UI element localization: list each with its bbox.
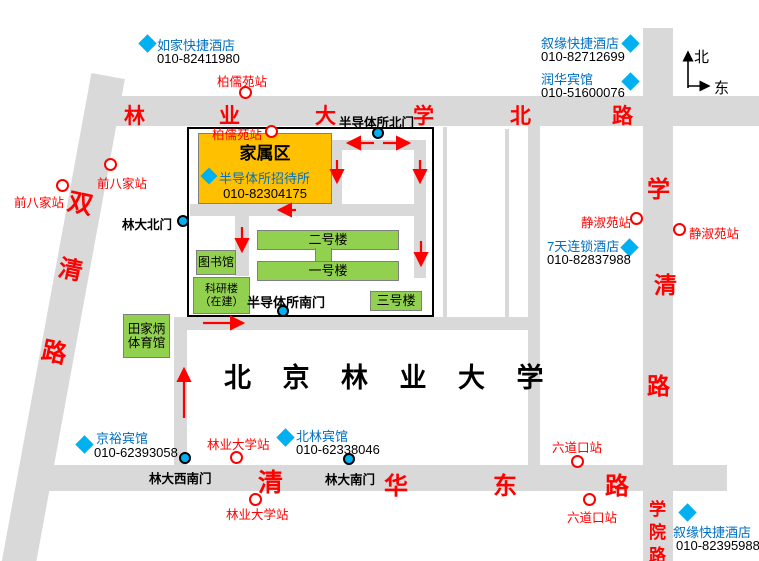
gate-linda-south-label: 林大南门 xyxy=(325,469,375,488)
hotel-runhua-phone: 010-51600076 xyxy=(541,85,625,100)
hotel-rujia-phone: 010-82411980 xyxy=(157,51,240,66)
station-jingshuyuan-1-label: 静淑苑站 xyxy=(581,212,631,231)
road-xueqing-char-1: 学 xyxy=(647,170,670,204)
station-bairuyuan-2-circle xyxy=(265,125,278,138)
hotel-xuyuan-south-diamond-icon xyxy=(678,503,696,521)
road-qinghua-char-4: 路 xyxy=(605,466,629,501)
block-divider-1 xyxy=(443,127,447,317)
building-gym-line2: 体育馆 xyxy=(128,336,166,350)
building-research-line1: 科研楼 xyxy=(205,283,238,296)
building-gym-line1: 田家炳 xyxy=(128,322,166,336)
compound-road-mid-h xyxy=(190,204,426,216)
guesthouse-phone: 010-82304175 xyxy=(199,186,331,201)
hotel-xuyuan-south-phone: 010-82395988 xyxy=(676,538,759,553)
building-no2-label: 二号楼 xyxy=(308,233,347,248)
gate-semi-north-dot xyxy=(372,127,384,139)
hotel-beilin-diamond-icon xyxy=(276,428,294,446)
gate-linda-north-label: 林大北门 xyxy=(122,214,172,233)
road-north-char-6: 路 xyxy=(612,100,633,130)
road-north-char-5: 北 xyxy=(510,100,531,130)
road-north-char-1: 林 xyxy=(124,100,145,130)
station-qianbajia-1-circle xyxy=(104,158,117,171)
road-qinghua-char-2: 华 xyxy=(384,466,408,501)
compound-road-mid-v xyxy=(235,216,249,276)
station-qianbajia-1-label: 前八家站 xyxy=(97,173,147,192)
building-no3-label: 三号楼 xyxy=(376,294,415,309)
building-research: 科研楼 （在建） xyxy=(193,277,250,314)
station-jingshuyuan-2-label: 静淑苑站 xyxy=(689,223,739,242)
gate-semi-south-dot xyxy=(277,305,289,317)
gate-linda-southwest-label: 林大西南门 xyxy=(149,468,212,487)
building-no2: 二号楼 xyxy=(257,230,399,250)
station-bairuyuan-2-label: 柏儒苑站 xyxy=(212,124,262,143)
road-qinghua-char-3: 东 xyxy=(493,466,517,501)
guesthouse-diamond-icon xyxy=(201,168,218,185)
station-bairuyuan-1-circle xyxy=(239,86,252,99)
road-minor-east xyxy=(528,124,540,466)
building-gym: 田家炳 体育馆 xyxy=(123,314,170,358)
station-jingshuyuan-1-circle xyxy=(630,212,643,225)
hotel-jingyu-diamond-icon xyxy=(75,435,93,453)
road-north-char-4: 学 xyxy=(413,100,434,130)
station-qianbajia-2-label: 前八家站 xyxy=(14,192,64,211)
station-liudaokou-2-circle xyxy=(583,493,596,506)
station-liudaokou-1-circle xyxy=(571,455,584,468)
station-jingshuyuan-2-circle xyxy=(673,223,686,236)
building-library-label: 图书馆 xyxy=(198,256,234,270)
building-no1-label: 一号楼 xyxy=(308,264,347,279)
block-divider-2 xyxy=(505,129,509,317)
road-campus-internal-h xyxy=(174,317,534,330)
station-liudaokou-1-label: 六道口站 xyxy=(552,437,602,456)
compass-north-label: 北 xyxy=(694,46,709,67)
road-xueqing-char-2: 清 xyxy=(654,266,677,300)
campus-title: 北 京 林 业 大 学 xyxy=(224,356,556,395)
road-north-char-3: 大 xyxy=(315,100,336,130)
campus-map: 家属区 半导体所招待所 010-82304175 二号楼 一号楼 图书馆 科研楼… xyxy=(0,0,759,561)
gate-linda-north-dot xyxy=(177,215,189,227)
road-xueyuan-char-1: 学 xyxy=(649,495,666,520)
road-xueyuan-char-2: 院 xyxy=(649,518,666,543)
hotel-jingyu-phone: 010-62393058 xyxy=(94,445,178,460)
road-xueyuan-char-3: 路 xyxy=(649,541,666,561)
building-no1: 一号楼 xyxy=(257,261,399,281)
hotel-qitian-phone: 010-82837988 xyxy=(547,252,631,267)
station-qianbajia-2-circle xyxy=(56,179,69,192)
building-research-line2: （在建） xyxy=(200,296,244,309)
building-no3: 三号楼 xyxy=(370,291,422,311)
guesthouse-name: 半导体所招待所 xyxy=(219,168,310,187)
family-area-box: 家属区 半导体所招待所 010-82304175 xyxy=(198,133,332,204)
building-library: 图书馆 xyxy=(196,250,236,275)
hotel-xuyuan-north-phone: 010-82712699 xyxy=(541,49,625,64)
compound-road-left xyxy=(332,140,342,206)
hotel-rujia-diamond-icon xyxy=(138,34,156,52)
station-liudaokou-2-label: 六道口站 xyxy=(567,507,617,526)
compass-east-label: 东 xyxy=(714,77,729,98)
station-linyedaxue-1-circle xyxy=(230,451,243,464)
gate-linda-southwest-dot xyxy=(179,452,191,464)
station-linyedaxue-2-label: 林业大学站 xyxy=(226,504,289,523)
compound-road-top xyxy=(335,140,426,150)
station-linyedaxue-1-label: 林业大学站 xyxy=(207,434,270,453)
hotel-beilin-phone: 010-62338046 xyxy=(296,442,380,457)
road-xueqing-char-3: 路 xyxy=(647,367,670,401)
building-connector xyxy=(315,248,332,261)
road-qinghua-char-1: 清 xyxy=(258,463,283,499)
